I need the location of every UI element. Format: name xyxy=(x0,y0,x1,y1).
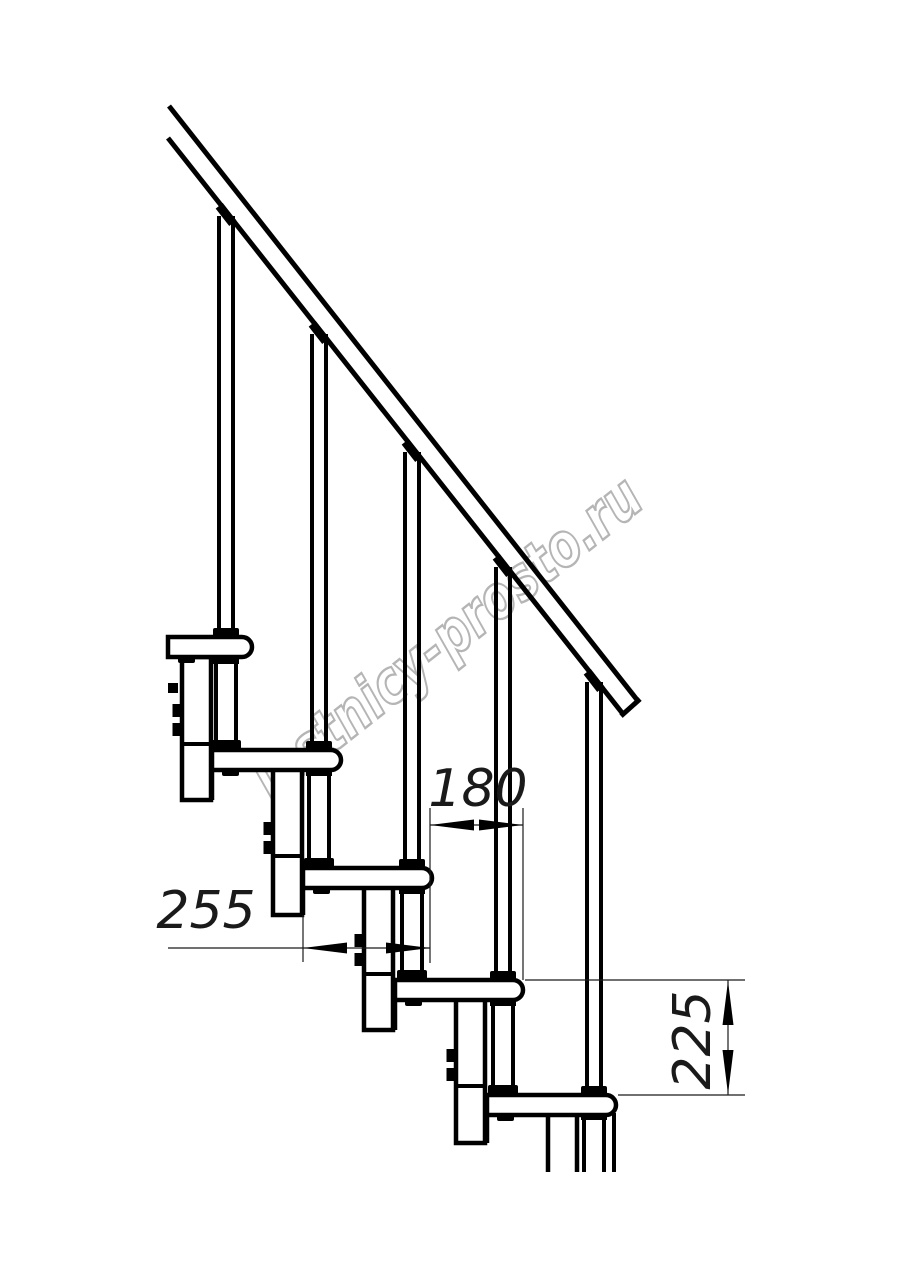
tread-body xyxy=(168,637,252,657)
baluster-1 xyxy=(213,203,239,637)
bracket-bolt xyxy=(264,841,274,854)
tread-2 xyxy=(212,750,341,776)
tread-body xyxy=(395,980,523,1000)
tread-5 xyxy=(487,1095,616,1121)
tread-body xyxy=(212,750,341,770)
baluster-5 xyxy=(581,669,607,1095)
arrowhead-left xyxy=(303,943,347,954)
handrail-lower-line xyxy=(168,138,623,714)
bracket-bolt xyxy=(173,723,183,736)
dimension-going: 180 xyxy=(428,759,527,980)
tread-body xyxy=(487,1095,616,1115)
handrail-end-cap xyxy=(621,699,640,716)
arrowhead-down xyxy=(723,1050,734,1094)
tread-3 xyxy=(303,868,432,894)
bracket-body xyxy=(364,887,393,1030)
bracket-bolt xyxy=(447,1068,457,1081)
bracket-column-3 xyxy=(355,887,394,1030)
tread-4 xyxy=(395,980,523,1006)
bracket-column-5 xyxy=(548,1113,577,1172)
bracket-body xyxy=(273,769,302,915)
arrowhead-up xyxy=(723,981,734,1025)
bracket-column-4 xyxy=(447,999,486,1143)
bracket-bolt xyxy=(264,822,274,835)
pillar-1 xyxy=(211,657,241,750)
pillar-3 xyxy=(397,887,427,980)
bracket-bolt xyxy=(355,934,365,947)
arrowhead-left xyxy=(430,820,474,831)
dimension-label-tread-length: 255 xyxy=(156,881,255,941)
pillar-5 xyxy=(581,1113,607,1172)
tread-nut xyxy=(405,999,422,1006)
bracket-bolt xyxy=(173,704,183,717)
dimension-label-going: 180 xyxy=(428,759,527,819)
cut-fastener-tab xyxy=(168,683,178,693)
dimension-label-rise: 225 xyxy=(663,990,723,1089)
tread-body xyxy=(303,868,432,888)
bracket-body xyxy=(456,999,485,1143)
tread-nut xyxy=(313,887,330,894)
bracket-bolt xyxy=(355,953,365,966)
tread-nut xyxy=(222,769,239,776)
tread-1 xyxy=(168,637,252,663)
bracket-bolt xyxy=(447,1049,457,1062)
tread-nut xyxy=(497,1114,514,1121)
bracket-body xyxy=(182,657,211,800)
baluster-2 xyxy=(306,321,332,750)
dimension-rise: 225 xyxy=(525,980,745,1095)
bracket-column-1 xyxy=(173,657,212,800)
arrowhead-right xyxy=(479,820,523,831)
staircase-drawing: lestnicy-prosto.ru xyxy=(0,0,914,1280)
pillar-4 xyxy=(488,999,518,1095)
tread-nut xyxy=(178,656,195,663)
